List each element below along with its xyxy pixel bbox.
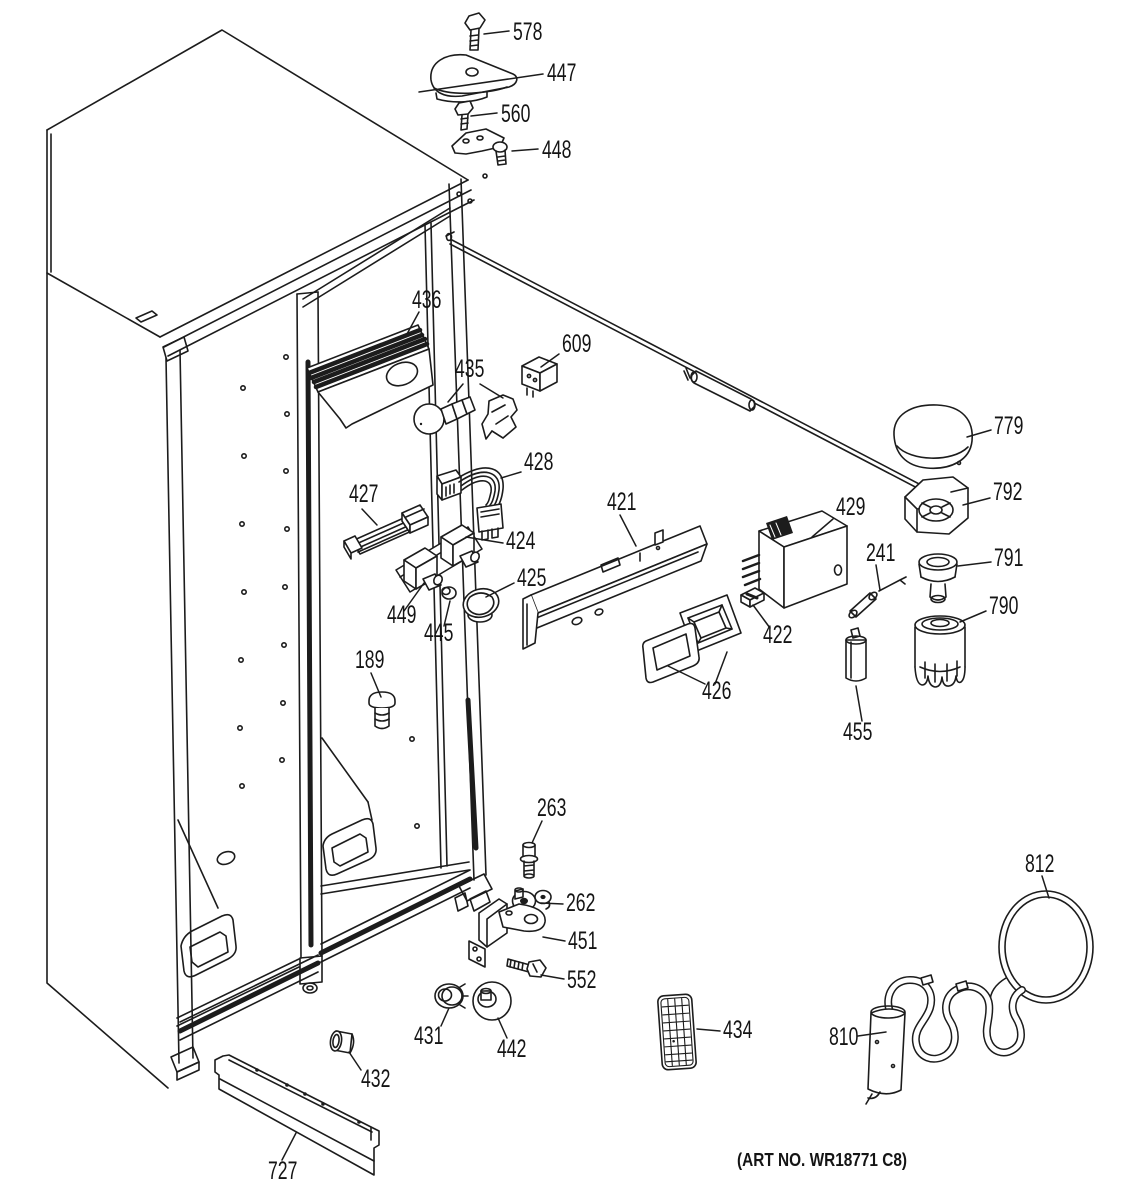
part-792-filter-head xyxy=(905,477,968,534)
part-241-tube-insert xyxy=(848,577,906,619)
part-label-552: 552 xyxy=(567,966,596,994)
part-263-hinge-pin xyxy=(521,843,538,879)
parts-layer xyxy=(215,13,1093,1175)
part-552-hex-bolt xyxy=(507,959,546,977)
part-label-447: 447 xyxy=(547,59,576,87)
leader-line-790 xyxy=(960,611,986,622)
part-189-hole-plug xyxy=(369,692,395,729)
part-label-189: 189 xyxy=(355,646,384,674)
leader-line-552 xyxy=(541,975,564,979)
leader-line-791 xyxy=(958,562,991,566)
leader-line-451 xyxy=(543,937,565,941)
wall-holes xyxy=(238,355,419,828)
leader-line-448 xyxy=(512,149,538,151)
leader-line-263 xyxy=(532,821,542,843)
part-810-812-condenser-assembly xyxy=(866,891,1093,1104)
leader-line-428 xyxy=(501,472,521,478)
part-427-ribbon-cable xyxy=(344,505,428,559)
part-label-421: 421 xyxy=(607,488,636,516)
part-water-tube xyxy=(446,232,946,502)
leader-line-727 xyxy=(282,1133,296,1160)
part-436-louver-duct xyxy=(307,325,433,428)
part-431-grommet xyxy=(435,984,468,1008)
part-445-bushing xyxy=(442,587,456,599)
part-label-609: 609 xyxy=(562,330,591,358)
part-455-plug-cylinder xyxy=(846,628,866,681)
part-label-424: 424 xyxy=(506,527,535,555)
part-label-792: 792 xyxy=(993,478,1022,506)
part-425-knob xyxy=(460,585,502,622)
part-435-light-bulb xyxy=(414,397,475,434)
leader-line-421 xyxy=(620,515,636,546)
part-label-790: 790 xyxy=(989,592,1018,620)
part-442-roller-washer xyxy=(473,982,511,1020)
refrigerator-exploded-parts-diagram: 5784475604484366094354284274244214292417… xyxy=(0,0,1125,1200)
part-label-442: 442 xyxy=(497,1035,526,1063)
part-447-hinge-cover xyxy=(431,55,517,102)
part-label-578: 578 xyxy=(513,18,542,46)
part-label-434: 434 xyxy=(723,1016,752,1044)
leader-line-432 xyxy=(349,1052,361,1070)
part-label-449: 449 xyxy=(387,601,416,629)
part-label-263: 263 xyxy=(537,794,566,822)
part-435-lamp-socket xyxy=(482,395,517,439)
leader-line-578 xyxy=(484,31,509,34)
part-label-812: 812 xyxy=(1025,850,1054,878)
part-label-425: 425 xyxy=(517,564,546,592)
part-label-432: 432 xyxy=(361,1065,390,1093)
part-560-screw xyxy=(455,101,473,130)
leader-line-560 xyxy=(471,113,497,116)
art-number: (ART NO. WR18771 C8) xyxy=(737,1150,907,1170)
part-label-455: 455 xyxy=(843,718,872,746)
leader-line-241 xyxy=(876,565,880,590)
leader-line-262 xyxy=(541,903,563,904)
part-label-448: 448 xyxy=(542,136,571,164)
leader-line-435 xyxy=(480,384,503,398)
part-label-262: 262 xyxy=(566,889,595,917)
part-578-shoulder-bolt xyxy=(465,13,485,50)
part-label-451: 451 xyxy=(568,927,597,955)
part-label-427: 427 xyxy=(349,480,378,508)
part-label-428: 428 xyxy=(524,448,553,476)
leader-line-427 xyxy=(362,509,377,525)
part-426-display-bezel xyxy=(643,595,741,683)
part-label-241: 241 xyxy=(866,539,895,567)
part-790-water-filter xyxy=(915,616,965,687)
part-448-top-hinge xyxy=(452,129,507,165)
part-609-switch xyxy=(522,357,557,397)
part-label-791: 791 xyxy=(994,544,1023,572)
part-label-445: 445 xyxy=(424,619,453,647)
part-791-filter-adapter xyxy=(919,554,957,603)
part-label-779: 779 xyxy=(994,412,1023,440)
part-label-429: 429 xyxy=(836,493,865,521)
leader-line-812 xyxy=(1042,876,1049,898)
part-label-435: 435 xyxy=(455,355,484,383)
part-label-431: 431 xyxy=(414,1022,443,1050)
part-434-vent-grille xyxy=(657,994,696,1070)
parts-diagram-page: 5784475604484366094354284274244214292417… xyxy=(0,0,1125,1200)
part-label-426: 426 xyxy=(702,677,731,705)
part-label-727: 727 xyxy=(268,1157,297,1185)
part-432-spacer-bushing xyxy=(329,1030,353,1053)
part-label-436: 436 xyxy=(412,286,441,314)
part-label-422: 422 xyxy=(763,621,792,649)
leader-line-455 xyxy=(856,686,862,721)
leader-line-434 xyxy=(697,1029,720,1031)
part-label-810: 810 xyxy=(829,1023,858,1051)
part-label-560: 560 xyxy=(501,100,530,128)
part-779-filter-cover xyxy=(894,405,972,468)
